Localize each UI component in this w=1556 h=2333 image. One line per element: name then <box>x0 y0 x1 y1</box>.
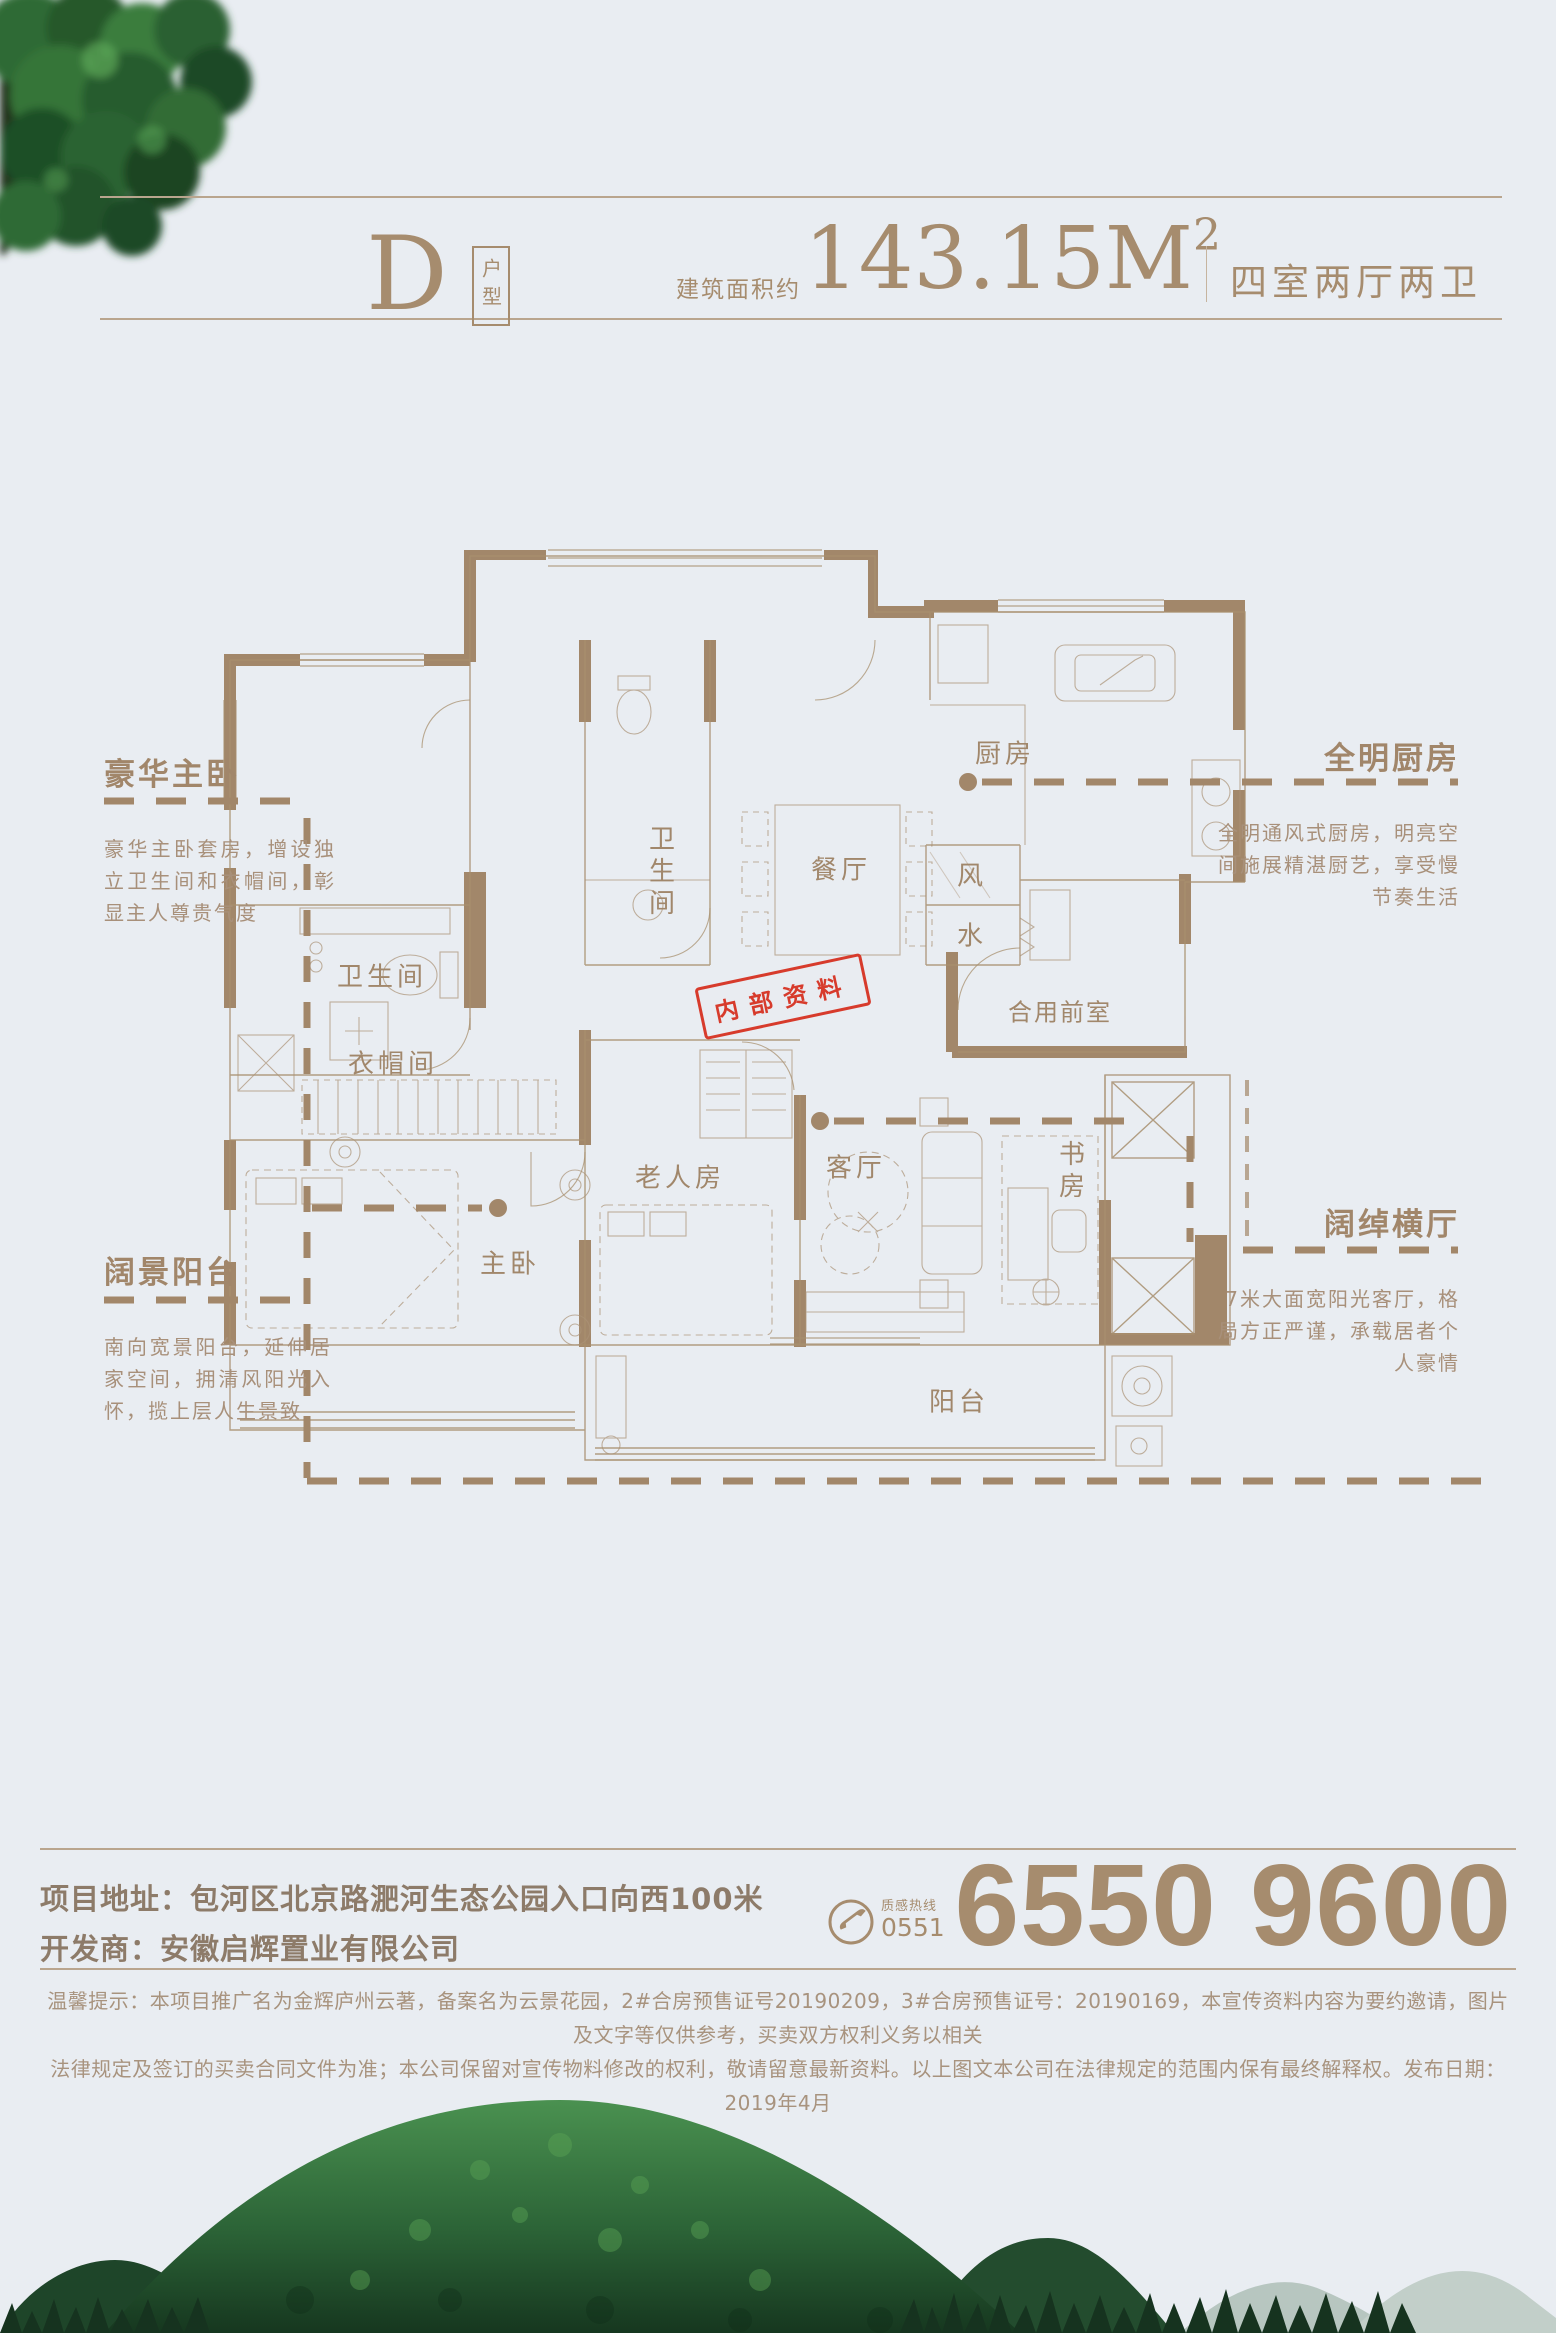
internal-material-stamp: 内部资料 <box>694 953 871 1040</box>
room-label-foyer: 合用前室 <box>1008 993 1112 1028</box>
room-label-master: 主卧 <box>480 1244 540 1281</box>
area-number: 143.15M <box>804 209 1193 309</box>
rooms-spec: 四室两厅两卫 <box>1230 252 1482 306</box>
room-label-elder: 老人房 <box>635 1158 725 1195</box>
room-label-kitchen: 厨房 <box>975 734 1035 771</box>
callout-master-suite: 豪华主卧 豪华主卧套房，增设独立卫生间和衣帽间，彰显主人尊贵气度 <box>104 760 336 929</box>
tree-art <box>0 0 252 256</box>
poster-page: { "header": { "plan_letter": "D", "plan_… <box>0 0 1556 2333</box>
room-label-wind-shaft: 风 <box>957 856 987 893</box>
callout-wide-hall: 阔绰横厅 7米大面宽阳光客厅，格局方正严谨，承载居者个人豪情 <box>1210 1210 1460 1379</box>
hotline-caption: 质感热线 0551 <box>881 1900 945 1942</box>
room-label-balcony: 阳台 <box>929 1382 989 1419</box>
area-value: 143.15M2 <box>804 214 1221 302</box>
room-label-bath-center: 卫生间 <box>642 825 679 921</box>
callout-title: 阔绰横厅 <box>1210 1210 1460 1241</box>
room-label-bath-left: 卫生间 <box>337 957 427 994</box>
room-label-living: 客厅 <box>826 1148 886 1185</box>
room-label-study: 书房 <box>1052 1140 1089 1204</box>
header-top-rule <box>100 196 1502 198</box>
room-label-cloak: 衣帽间 <box>348 1044 438 1081</box>
project-developer: 开发商：安徽启辉置业有限公司 <box>40 1924 764 1974</box>
plan-doors <box>418 640 1020 1206</box>
header-bottom-rule <box>100 318 1502 320</box>
callout-body: 豪华主卧套房，增设独立卫生间和衣帽间，彰显主人尊贵气度 <box>104 833 336 929</box>
hotline-area-code: 0551 <box>881 1914 945 1942</box>
disclaimer-line-2: 法律规定及签订的买卖合同文件为准；本公司保留对宣传物料修改的权利，敬请留意最新资… <box>40 2052 1516 2120</box>
callout-body: 7米大面宽阳光客厅，格局方正严谨，承载居者个人豪情 <box>1210 1283 1460 1379</box>
phone-icon <box>827 1898 875 1946</box>
disclaimer-line-1: 温馨提示：本项目推广名为金辉庐州云著，备案名为云景花园，2#合房预售证号2019… <box>40 1984 1516 2052</box>
room-label-water-shaft: 水 <box>957 916 987 953</box>
callout-title: 阔景阳台 <box>104 1258 332 1289</box>
mountain-art <box>0 2100 1556 2333</box>
hotline-block: 质感热线 0551 6550 9600 <box>827 1856 1512 1956</box>
plan-windows <box>224 550 1164 1344</box>
disclaimer: 温馨提示：本项目推广名为金辉庐州云著，备案名为云景花园，2#合房预售证号2019… <box>40 1984 1516 2120</box>
room-label-dining: 餐厅 <box>811 850 871 887</box>
callout-body: 全明通风式厨房，明亮空间施展精湛厨艺，享受慢节奏生活 <box>1215 817 1460 913</box>
footer-bottom-rule <box>40 1968 1516 1970</box>
area-label: 建筑面积约 <box>676 270 801 304</box>
plan-letter: D <box>366 224 448 326</box>
project-info: 项目地址：包河区北京路淝河生态公园入口向西100米 开发商：安徽启辉置业有限公司 <box>40 1874 764 1974</box>
hotline-name: 质感热线 <box>881 1900 945 1914</box>
callout-body: 南向宽景阳台，延伸居家空间，拥清风阳光入怀，揽上层人生景致 <box>104 1331 332 1427</box>
callout-title: 全明厨房 <box>1215 744 1460 775</box>
callout-bright-kitchen: 全明厨房 全明通风式厨房，明亮空间施展精湛厨艺，享受慢节奏生活 <box>1215 744 1460 913</box>
callout-title: 豪华主卧 <box>104 760 336 791</box>
hotline-number: 6550 9600 <box>955 1856 1512 1956</box>
plan-walls <box>224 550 1245 1347</box>
plan-type-badge: 户型 <box>472 246 510 326</box>
project-address: 项目地址：包河区北京路淝河生态公园入口向西100米 <box>40 1874 764 1924</box>
header-divider <box>1206 246 1207 302</box>
callout-view-balcony: 阔景阳台 南向宽景阳台，延伸居家空间，拥清风阳光入怀，揽上层人生景致 <box>104 1258 332 1427</box>
